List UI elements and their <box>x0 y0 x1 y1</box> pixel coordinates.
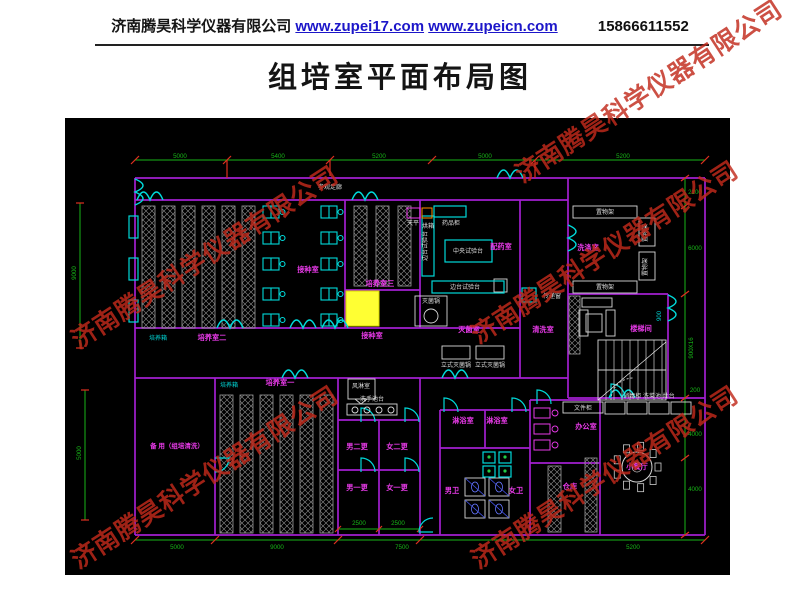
sterilizer <box>424 309 438 323</box>
wash-basin <box>388 407 394 413</box>
company-name: 济南腾昊科学仪器有限公司 <box>111 18 291 35</box>
culture-rack <box>182 206 195 328</box>
clean-bench <box>263 232 285 244</box>
room-label: 培养室三 <box>366 279 395 288</box>
dimension-label: 4000 <box>688 486 702 493</box>
page: { "header": { "company": "济南腾昊科学仪器有限公司",… <box>0 0 800 600</box>
wash-basin <box>376 407 382 413</box>
room-label: 灭菌室 <box>457 325 480 334</box>
room-label: 小餐厅 <box>625 462 648 471</box>
double-door <box>568 225 576 251</box>
equipment <box>649 402 669 414</box>
dimension-label: 7500 <box>395 544 409 551</box>
room-label: 女一更 <box>386 483 408 492</box>
equipment <box>671 402 691 414</box>
equipment-label: 天平 <box>407 220 419 227</box>
dimension-label: 200 <box>690 387 701 394</box>
room-label: 备 用（组培清洗） <box>149 441 204 450</box>
floorplan-canvas: 参观走廊接种室培养室三培养箱培养室二接种室配药室洗涤室灭菌室清洗室楼梯间培养箱培… <box>65 118 730 575</box>
room-label: 女二更 <box>386 442 408 451</box>
dimension-label: 6000 <box>688 245 702 252</box>
sink-dot <box>487 455 490 458</box>
desk <box>534 408 550 418</box>
dining-chair <box>614 470 620 478</box>
double-door <box>322 320 348 328</box>
room-label: 女卫 <box>509 486 523 495</box>
equipment-label: 置物架 <box>596 283 614 291</box>
room-label: 培养室二 <box>198 333 227 342</box>
culture-rack <box>354 206 367 286</box>
floorplan-image: 参观走廊接种室培养室三培养箱培养室二接种室配药室洗涤室灭菌室清洗室楼梯间培养箱培… <box>65 118 730 575</box>
cyan-fixture <box>129 216 138 238</box>
dining-chair <box>655 463 661 471</box>
room-label: 淋浴室 <box>486 416 508 425</box>
dimension-label: 5000 <box>173 153 187 160</box>
dining-chair <box>614 456 620 464</box>
chair <box>552 410 558 416</box>
sink-dot <box>503 469 506 472</box>
dining-chair <box>638 484 644 492</box>
cyan-fixture <box>129 258 138 280</box>
room-label: 仓库 <box>562 482 577 491</box>
culture-rack <box>240 395 253 533</box>
room-label: 清洗室 <box>532 325 554 334</box>
chair <box>552 426 558 432</box>
dimension-label: 4000 <box>688 431 702 438</box>
desk <box>534 440 550 450</box>
room-label: 接种室 <box>361 331 383 340</box>
dimension-label: 5000 <box>478 153 492 160</box>
dimension-label: 2500 <box>391 520 405 527</box>
culture-rack <box>280 395 293 533</box>
equipment-label: 中央试验台 <box>453 247 483 255</box>
equipment-label: 文件柜 <box>574 404 592 412</box>
equipment-label: 参观走廊 <box>318 183 342 191</box>
stall-door <box>489 478 509 496</box>
desk <box>534 424 550 434</box>
dimension-label: 2100 <box>688 189 702 196</box>
equipment-label: 洗手池台 <box>360 395 384 403</box>
culture-rack <box>300 395 313 533</box>
equipment-label: 传递窗 <box>543 292 561 300</box>
stall-door <box>489 500 509 518</box>
culture-rack <box>202 206 215 328</box>
dimension-label: 2500 <box>352 520 366 527</box>
equipment-label: 烘箱 <box>422 222 434 230</box>
culture-rack <box>376 206 389 286</box>
dimension-label: 5400 <box>271 153 285 160</box>
culture-rack <box>585 458 597 532</box>
culture-rack <box>220 395 233 533</box>
dimension-label: 5200 <box>372 153 386 160</box>
sink-dot <box>503 455 506 458</box>
equipment <box>582 298 612 307</box>
dining-chair <box>650 450 656 458</box>
single-door <box>419 518 433 532</box>
clean-bench <box>263 288 285 300</box>
equipment-label: 培养箱 <box>149 334 167 342</box>
dining-chair <box>624 481 630 489</box>
cyan-fixture <box>129 300 138 322</box>
clean-bench <box>263 206 285 218</box>
equipment-label: 立式灭菌锅 <box>475 361 505 369</box>
room-label: 洗涤室 <box>577 243 599 252</box>
double-door <box>290 320 316 328</box>
equipment <box>442 346 470 359</box>
culture-rack <box>569 296 580 354</box>
room-label: 配药室 <box>490 242 512 251</box>
culture-rack <box>320 395 333 533</box>
double-door <box>497 170 523 178</box>
dimension-label: 9000 <box>71 266 78 280</box>
double-door <box>352 192 378 200</box>
clean-bench <box>321 288 343 300</box>
equipment-label: 900 <box>657 310 663 321</box>
page-header: 济南腾昊科学仪器有限公司 www.zupei17.com www.zupeicn… <box>0 15 800 36</box>
double-door <box>442 370 468 378</box>
clean-bench <box>263 258 285 270</box>
equipment-label: 风淋室 <box>352 382 370 390</box>
header-divider <box>95 44 709 46</box>
cyan-fixture <box>522 288 536 302</box>
equipment-label: 立式灭菌锅 <box>441 361 471 369</box>
dining-chair <box>624 445 630 453</box>
wash-basin <box>352 407 358 413</box>
clean-bench <box>263 314 285 326</box>
dimension-label: 5200 <box>616 153 630 160</box>
equipment-label: 边台试验台 <box>450 283 480 291</box>
equipment <box>606 310 615 336</box>
equipment-label: 置物架 <box>596 208 614 216</box>
room-label: 淋浴室 <box>452 416 474 425</box>
culture-rack <box>222 206 235 328</box>
phone-number: 15866611552 <box>598 18 689 35</box>
equipment-label: 边台试验台 <box>421 231 429 261</box>
equipment-label: 置物架 <box>641 258 649 276</box>
dimension-label: 5000 <box>76 446 83 460</box>
single-door <box>537 390 551 404</box>
chair <box>552 442 558 448</box>
dimension-label: 9000 <box>270 544 284 551</box>
culture-rack <box>242 206 255 328</box>
double-door <box>282 370 308 378</box>
dimension-label: 900X16 <box>688 337 695 359</box>
highlight-square <box>346 291 379 326</box>
clean-bench <box>321 258 343 270</box>
room-label: 培养室一 <box>266 378 296 387</box>
equipment-label: 药品柜 <box>442 219 460 227</box>
equipment-label: 消毒柜 洗菜池 灶台 <box>623 392 674 400</box>
dining-chair <box>650 476 656 484</box>
room-label: 办公室 <box>575 422 597 431</box>
link-zupei17[interactable]: www.zupei17.com <box>295 18 424 35</box>
room-label: 接种室 <box>297 265 319 274</box>
equipment-label: 置物架 <box>641 224 649 242</box>
room-label: 男二更 <box>345 442 368 451</box>
equipment <box>627 402 647 414</box>
clean-bench <box>321 206 343 218</box>
equipment-label: 培养箱 <box>220 381 238 389</box>
clean-bench <box>321 232 343 244</box>
culture-rack <box>548 466 561 532</box>
equipment <box>476 346 504 359</box>
dimension-label: 5200 <box>626 544 640 551</box>
sink-dot <box>487 469 490 472</box>
dimension-label: 5000 <box>170 544 184 551</box>
room-label: 男卫 <box>444 486 459 495</box>
culture-rack <box>162 206 175 328</box>
stall-door <box>465 500 485 518</box>
room-label: 男一更 <box>345 483 368 492</box>
cyan-fixture <box>434 206 466 217</box>
stall-door <box>465 478 485 496</box>
room-label: 楼梯间 <box>630 324 652 333</box>
page-title: 组培室平面布局图 <box>0 54 800 96</box>
culture-rack <box>260 395 273 533</box>
equipment <box>605 402 625 414</box>
link-zupeicn[interactable]: www.zupeicn.com <box>428 18 557 35</box>
culture-rack <box>142 206 155 328</box>
dining-chair <box>638 442 644 450</box>
double-door <box>668 295 676 321</box>
equipment-label: 灭菌锅 <box>422 297 440 305</box>
